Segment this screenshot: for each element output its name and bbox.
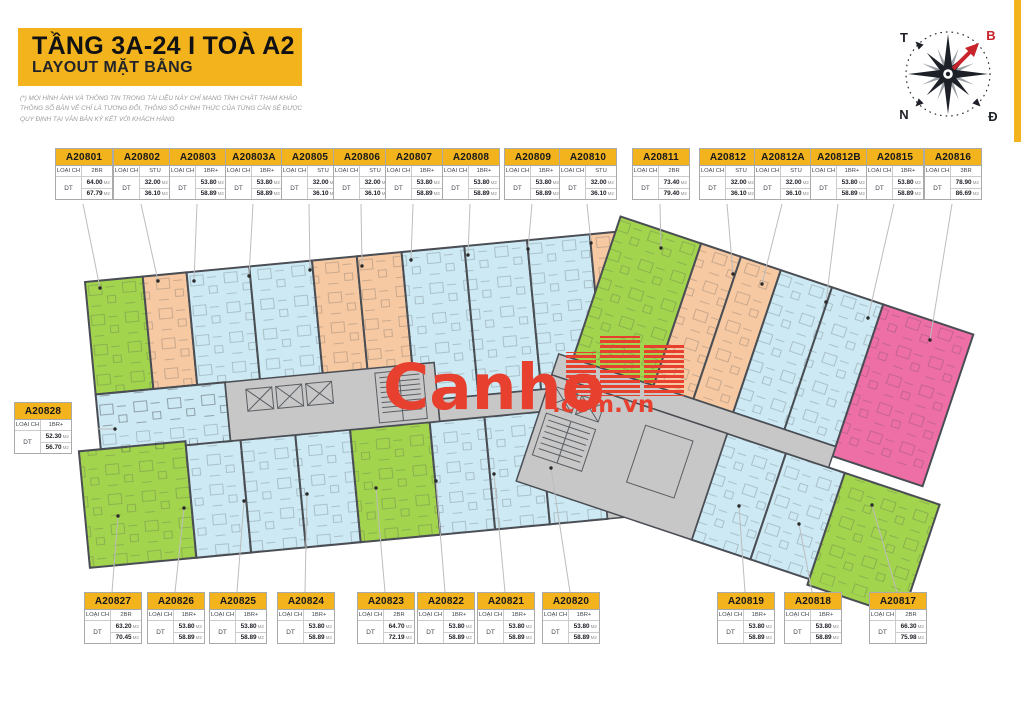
unit-area-value-2: 72.19M2 [384, 632, 414, 644]
unit-type-key-label: LOẠI CH [867, 166, 893, 176]
unit-type-value: 1BR+ [41, 420, 71, 430]
unit-label-card-a20827: A20827 LOẠI CH 2BR DT 63.20M2 70.45M2 [84, 592, 142, 644]
compass-hub-dot [946, 72, 950, 76]
unit-type-value: STU [726, 166, 756, 176]
unit-type-value: 1BR+ [304, 610, 334, 620]
unit-id: A20822 [418, 593, 474, 610]
unit-type-value: STU [586, 166, 616, 176]
unit-area-value-1: 52.30M2 [41, 431, 71, 442]
unit-area-unit: M2 [833, 624, 839, 629]
unit-id: A20824 [278, 593, 334, 610]
disclaimer-line: THÔNG SỐ BẢN VẼ CHỈ LÀ TƯƠNG ĐỐI, THÔNG … [20, 104, 340, 114]
unit-area-value-1: 53.80M2 [236, 621, 266, 632]
unit-area-unit: M2 [406, 635, 412, 640]
unit-area-unit: M2 [591, 635, 597, 640]
unit-type-key-label: LOẠI CH [700, 166, 726, 176]
compass-label-north: B [986, 28, 995, 43]
unit-label-card-a20824: A20824 LOẠI CH 1BR+ DT 53.80M2 58.89M2 [277, 592, 335, 644]
unit-area-unit: M2 [803, 180, 809, 185]
unit-area-unit: M2 [466, 624, 472, 629]
unit-area-value-2: 36.10M2 [586, 188, 616, 200]
unit-area-value-1: 53.80M2 [744, 621, 774, 632]
unit-type-key-label: LOẠI CH [358, 610, 384, 620]
unit-type-value: 1BR+ [893, 166, 923, 176]
unit-type-value: 2BR [659, 166, 689, 176]
unit-label-card-a20823: A20823 LOẠI CH 2BR DT 64.70M2 72.19M2 [357, 592, 415, 644]
unit-area-key-label: DT [210, 621, 236, 643]
unit-type-value: 1BR+ [469, 166, 499, 176]
unit-type-key-label: LOẠI CH [15, 420, 41, 430]
unit-area-value-2: 58.89M2 [174, 632, 204, 644]
unit-area-value-1: 53.80M2 [837, 177, 867, 188]
unit-area-value-2: 58.89M2 [893, 188, 923, 200]
unit-area-unit: M2 [104, 191, 110, 196]
unit-type-key-label: LOẠI CH [56, 166, 82, 176]
unit-type-value: 1BR+ [837, 166, 867, 176]
unit-type-key-label: LOẠI CH [560, 166, 586, 176]
unit-type-key-label: LOẠI CH [633, 166, 659, 176]
unit-area-value-2: 58.89M2 [744, 632, 774, 644]
unit-id: A20805 [282, 149, 338, 166]
unit-area-value-1: 53.80M2 [444, 621, 474, 632]
unit-area-unit: M2 [162, 180, 168, 185]
unit-area-value-1: 53.80M2 [893, 177, 923, 188]
unit-area-unit: M2 [608, 180, 614, 185]
unit-area-value-2: 75.98M2 [896, 632, 926, 644]
unit-area-key-label: DT [226, 177, 252, 199]
unit-label-card-a20802: A20802 LOẠI CH STU DT 32.00M2 36.10M2 [113, 148, 171, 200]
unit-area-value-1: 53.80M2 [569, 621, 599, 632]
unit-id: A20810 [560, 149, 616, 166]
unit-area-key-label: DT [505, 177, 531, 199]
unit-type-key-label: LOẠI CH [718, 610, 744, 620]
unit-id: A20818 [785, 593, 841, 610]
unit-id: A20828 [15, 403, 71, 420]
unit-id: A20823 [358, 593, 414, 610]
unit-area-value-1: 32.00M2 [781, 177, 811, 188]
unit-area-value-2: 86.69M2 [951, 188, 981, 200]
unit-area-value-2: 58.89M2 [412, 188, 442, 200]
unit-area-unit: M2 [434, 191, 440, 196]
unit-label-card-a20803: A20803 LOẠI CH 1BR+ DT 53.80M2 58.89M2 [169, 148, 227, 200]
unit-area-value-2: 58.89M2 [444, 632, 474, 644]
unit-area-value-1: 53.80M2 [504, 621, 534, 632]
unit-area-unit: M2 [918, 635, 924, 640]
unit-type-value: 1BR+ [412, 166, 442, 176]
unit-area-unit: M2 [766, 635, 772, 640]
unit-area-unit: M2 [973, 191, 979, 196]
unit-area-value-2: 58.89M2 [252, 188, 282, 200]
unit-id: A20808 [443, 149, 499, 166]
unit-area-value-1: 53.80M2 [252, 177, 282, 188]
unit-label-card-a20817: A20817 LOẠI CH 2BR DT 66.30M2 75.98M2 [869, 592, 927, 644]
unit-area-value-1: 53.80M2 [412, 177, 442, 188]
unit-area-value-2: 36.10M2 [140, 188, 170, 200]
unit-label-card-a20809: A20809 LOẠI CH 1BR+ DT 53.80M2 58.89M2 [504, 148, 562, 200]
unit-area-unit: M2 [526, 624, 532, 629]
disclaimer-text: (*) MỌI HÌNH ẢNH VÀ THÔNG TIN TRONG TÀI … [20, 94, 340, 125]
unit-label-card-a20812a: A20812A LOẠI CH STU DT 32.00M2 36.10M2 [754, 148, 812, 200]
unit-area-value-2: 58.89M2 [304, 632, 334, 644]
unit-type-value: 1BR+ [236, 610, 266, 620]
unit-type-value: 2BR [111, 610, 141, 620]
unit-label-card-a20822: A20822 LOẠI CH 1BR+ DT 53.80M2 58.89M2 [417, 592, 475, 644]
unit-area-key-label: DT [56, 177, 82, 199]
unit-area-value-2: 58.89M2 [196, 188, 226, 200]
unit-area-key-label: DT [700, 177, 726, 199]
unit-area-value-1: 53.80M2 [196, 177, 226, 188]
unit-type-value: 1BR+ [444, 610, 474, 620]
unit-label-card-a20819: A20819 LOẠI CH 1BR+ DT 53.80M2 58.89M2 [717, 592, 775, 644]
unit-type-key-label: LOẠI CH [418, 610, 444, 620]
unit-type-key-label: LOẠI CH [478, 610, 504, 620]
unit-area-unit: M2 [218, 191, 224, 196]
title-block: TẦNG 3A-24 I TOÀ A2 LAYOUT MẶT BẰNG [18, 28, 302, 86]
unit-id: A20803 [170, 149, 226, 166]
unit-label-card-a20816: A20816 LOẠI CH 3BR DT 78.90M2 86.69M2 [924, 148, 982, 200]
unit-area-unit: M2 [833, 635, 839, 640]
unit-area-key-label: DT [478, 621, 504, 643]
unit-area-unit: M2 [491, 191, 497, 196]
watermark-building-icon [600, 336, 640, 396]
unit-area-unit: M2 [63, 434, 69, 439]
unit-area-unit: M2 [258, 624, 264, 629]
unit-area-unit: M2 [918, 624, 924, 629]
disclaimer-line: (*) MỌI HÌNH ẢNH VÀ THÔNG TIN TRONG TÀI … [20, 94, 340, 104]
unit-area-unit: M2 [274, 191, 280, 196]
unit-area-value-1: 53.80M2 [811, 621, 841, 632]
unit-area-key-label: DT [785, 621, 811, 643]
unit-area-unit: M2 [973, 180, 979, 185]
unit-area-value-2: 36.10M2 [726, 188, 756, 200]
unit-type-value: 1BR+ [811, 610, 841, 620]
unit-area-unit: M2 [258, 635, 264, 640]
unit-area-unit: M2 [466, 635, 472, 640]
unit-type-key-label: LOẠI CH [334, 166, 360, 176]
unit-area-unit: M2 [859, 180, 865, 185]
unit-area-unit: M2 [326, 635, 332, 640]
unit-area-key-label: DT [358, 621, 384, 643]
unit-type-value: 1BR+ [504, 610, 534, 620]
unit-type-value: 3BR [951, 166, 981, 176]
unit-id: A20817 [870, 593, 926, 610]
unit-area-key-label: DT [811, 177, 837, 199]
unit-area-unit: M2 [218, 180, 224, 185]
unit-id: A20806 [334, 149, 390, 166]
unit-type-value: 1BR+ [569, 610, 599, 620]
unit-id: A20807 [386, 149, 442, 166]
unit-area-unit: M2 [104, 180, 110, 185]
unit-area-unit: M2 [915, 180, 921, 185]
unit-label-card-a20815: A20815 LOẠI CH 1BR+ DT 53.80M2 58.89M2 [866, 148, 924, 200]
unit-area-value-1: 66.30M2 [896, 621, 926, 632]
unit-type-key-label: LOẠI CH [785, 610, 811, 620]
unit-id: A20825 [210, 593, 266, 610]
unit-area-value-1: 73.40M2 [659, 177, 689, 188]
unit-label-card-a20810: A20810 LOẠI CH STU DT 32.00M2 36.10M2 [559, 148, 617, 200]
unit-area-unit: M2 [681, 191, 687, 196]
unit-type-key-label: LOẠI CH [925, 166, 951, 176]
unit-area-key-label: DT [148, 621, 174, 643]
unit-type-key-label: LOẠI CH [210, 610, 236, 620]
unit-area-key-label: DT [543, 621, 569, 643]
disclaimer-line: QUY ĐỊNH TẠI VĂN BẢN KÝ KẾT VỚI KHÁCH HÀ… [20, 115, 340, 125]
unit-area-key-label: DT [15, 431, 41, 453]
unit-id: A20812A [755, 149, 811, 166]
floorplan-page: Canho .com.vn TẦNG 3A-24 I TOÀ A2 LAYOUT… [0, 0, 1024, 723]
unit-label-card-a20821: A20821 LOẠI CH 1BR+ DT 53.80M2 58.89M2 [477, 592, 535, 644]
unit-id: A20803A [226, 149, 282, 166]
unit-type-key-label: LOẠI CH [114, 166, 140, 176]
unit-area-value-1: 53.80M2 [174, 621, 204, 632]
unit-area-unit: M2 [915, 191, 921, 196]
compass-label-south: N [899, 107, 908, 122]
unit-area-key-label: DT [633, 177, 659, 199]
unit-area-value-1: 53.80M2 [469, 177, 499, 188]
unit-type-value: 2BR [896, 610, 926, 620]
unit-area-unit: M2 [491, 180, 497, 185]
unit-label-card-a20803a: A20803A LOẠI CH 1BR+ DT 53.80M2 58.89M2 [225, 148, 283, 200]
unit-area-unit: M2 [434, 180, 440, 185]
unit-area-key-label: DT [870, 621, 896, 643]
unit-label-card-a20820: A20820 LOẠI CH 1BR+ DT 53.80M2 58.89M2 [542, 592, 600, 644]
unit-area-value-2: 79.40M2 [659, 188, 689, 200]
unit-area-unit: M2 [591, 624, 597, 629]
unit-area-unit: M2 [133, 635, 139, 640]
unit-label-card-a20805: A20805 LOẠI CH STU DT 32.00M2 36.10M2 [281, 148, 339, 200]
unit-type-key-label: LOẠI CH [443, 166, 469, 176]
unit-area-value-2: 58.89M2 [531, 188, 561, 200]
watermark-suffix: .com.vn [552, 392, 654, 418]
unit-id: A20826 [148, 593, 204, 610]
unit-area-key-label: DT [560, 177, 586, 199]
unit-type-key-label: LOẠI CH [170, 166, 196, 176]
unit-type-value: 1BR+ [744, 610, 774, 620]
unit-area-unit: M2 [326, 624, 332, 629]
unit-area-value-1: 32.00M2 [140, 177, 170, 188]
page-subtitle: LAYOUT MẶT BẰNG [32, 59, 302, 77]
unit-id: A20811 [633, 149, 689, 166]
unit-area-value-2: 56.70M2 [41, 442, 71, 454]
unit-label-card-a20801: A20801 LOẠI CH 2BR DT 64.00M2 67.79M2 [55, 148, 113, 200]
unit-area-value-1: 78.90M2 [951, 177, 981, 188]
unit-area-unit: M2 [406, 624, 412, 629]
unit-type-key-label: LOẠI CH [755, 166, 781, 176]
unit-label-card-a20807: A20807 LOẠI CH 1BR+ DT 53.80M2 58.89M2 [385, 148, 443, 200]
unit-label-card-a20818: A20818 LOẠI CH 1BR+ DT 53.80M2 58.89M2 [784, 592, 842, 644]
unit-id: A20801 [56, 149, 112, 166]
unit-area-key-label: DT [867, 177, 893, 199]
page-title: TẦNG 3A-24 I TOÀ A2 [32, 33, 302, 59]
unit-id: A20820 [543, 593, 599, 610]
unit-area-key-label: DT [170, 177, 196, 199]
unit-area-value-2: 58.89M2 [811, 632, 841, 644]
unit-area-unit: M2 [859, 191, 865, 196]
watermark-building-icon [644, 345, 684, 396]
unit-area-value-2: 58.89M2 [837, 188, 867, 200]
unit-id: A20812 [700, 149, 756, 166]
unit-label-card-a20812: A20812 LOẠI CH STU DT 32.00M2 36.10M2 [699, 148, 757, 200]
unit-label-card-a20828: A20828 LOẠI CH 1BR+ DT 52.30M2 56.70M2 [14, 402, 72, 454]
unit-area-unit: M2 [274, 180, 280, 185]
unit-id: A20827 [85, 593, 141, 610]
unit-type-key-label: LOẠI CH [543, 610, 569, 620]
compass-label-east: Đ [988, 109, 997, 124]
unit-area-key-label: DT [85, 621, 111, 643]
unit-area-key-label: DT [114, 177, 140, 199]
unit-type-value: 2BR [384, 610, 414, 620]
unit-id: A20812B [811, 149, 867, 166]
unit-area-key-label: DT [278, 621, 304, 643]
unit-area-unit: M2 [526, 635, 532, 640]
unit-area-unit: M2 [133, 624, 139, 629]
unit-type-key-label: LOẠI CH [811, 166, 837, 176]
unit-type-key-label: LOẠI CH [148, 610, 174, 620]
unit-area-value-2: 58.89M2 [469, 188, 499, 200]
unit-type-value: STU [781, 166, 811, 176]
unit-type-value: STU [140, 166, 170, 176]
unit-area-value-2: 58.89M2 [569, 632, 599, 644]
unit-area-value-1: 64.70M2 [384, 621, 414, 632]
unit-area-value-2: 36.10M2 [781, 188, 811, 200]
unit-type-key-label: LOẠI CH [226, 166, 252, 176]
unit-type-value: 1BR+ [531, 166, 561, 176]
unit-label-card-a20806: A20806 LOẠI CH STU DT 32.00M2 36.10M2 [333, 148, 391, 200]
unit-type-key-label: LOẠI CH [85, 610, 111, 620]
unit-area-value-2: 70.45M2 [111, 632, 141, 644]
unit-area-value-2: 58.89M2 [504, 632, 534, 644]
unit-area-value-1: 64.00M2 [82, 177, 112, 188]
unit-area-key-label: DT [925, 177, 951, 199]
unit-label-card-a20825: A20825 LOẠI CH 1BR+ DT 53.80M2 58.89M2 [209, 592, 267, 644]
unit-area-value-1: 32.00M2 [726, 177, 756, 188]
unit-type-key-label: LOẠI CH [386, 166, 412, 176]
unit-area-key-label: DT [334, 177, 360, 199]
unit-area-unit: M2 [681, 180, 687, 185]
unit-area-key-label: DT [443, 177, 469, 199]
unit-type-value: 1BR+ [252, 166, 282, 176]
unit-label-card-a20808: A20808 LOẠI CH 1BR+ DT 53.80M2 58.89M2 [442, 148, 500, 200]
unit-type-key-label: LOẠI CH [505, 166, 531, 176]
unit-type-value: 1BR+ [174, 610, 204, 620]
unit-area-key-label: DT [282, 177, 308, 199]
unit-label-card-a20826: A20826 LOẠI CH 1BR+ DT 53.80M2 58.89M2 [147, 592, 205, 644]
unit-area-key-label: DT [386, 177, 412, 199]
unit-area-unit: M2 [608, 191, 614, 196]
unit-area-unit: M2 [803, 191, 809, 196]
unit-type-value: 1BR+ [196, 166, 226, 176]
edge-accent-strip [1014, 0, 1021, 142]
unit-area-key-label: DT [755, 177, 781, 199]
unit-id: A20815 [867, 149, 923, 166]
unit-id: A20821 [478, 593, 534, 610]
unit-id: A20819 [718, 593, 774, 610]
unit-area-value-1: 63.20M2 [111, 621, 141, 632]
unit-area-value-1: 32.00M2 [586, 177, 616, 188]
unit-type-key-label: LOẠI CH [278, 610, 304, 620]
unit-type-value: 2BR [82, 166, 112, 176]
unit-type-key-label: LOẠI CH [870, 610, 896, 620]
unit-id: A20809 [505, 149, 561, 166]
unit-area-unit: M2 [162, 191, 168, 196]
unit-type-key-label: LOẠI CH [282, 166, 308, 176]
unit-label-card-a20812b: A20812B LOẠI CH 1BR+ DT 53.80M2 58.89M2 [810, 148, 868, 200]
compass-label-west: T [900, 30, 908, 45]
compass-rose: T B N Đ [890, 12, 1006, 130]
unit-area-value-2: 58.89M2 [236, 632, 266, 644]
unit-area-value-1: 53.80M2 [531, 177, 561, 188]
unit-area-value-2: 67.79M2 [82, 188, 112, 200]
unit-area-unit: M2 [196, 635, 202, 640]
unit-area-unit: M2 [766, 624, 772, 629]
unit-id: A20816 [925, 149, 981, 166]
unit-id: A20802 [114, 149, 170, 166]
unit-label-card-a20811: A20811 LOẠI CH 2BR DT 73.40M2 79.40M2 [632, 148, 690, 200]
unit-area-key-label: DT [418, 621, 444, 643]
unit-area-unit: M2 [63, 445, 69, 450]
unit-area-value-1: 53.80M2 [304, 621, 334, 632]
unit-area-unit: M2 [196, 624, 202, 629]
unit-area-key-label: DT [718, 621, 744, 643]
